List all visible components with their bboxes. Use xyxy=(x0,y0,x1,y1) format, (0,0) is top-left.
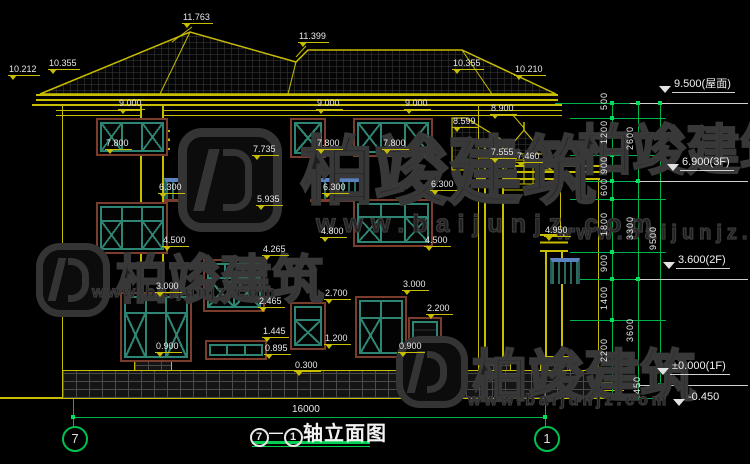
elevation-label: 7.800 xyxy=(316,138,343,150)
elevation-label: 2.700 xyxy=(324,288,351,300)
elevation-marker: 3.600(2F) xyxy=(676,254,730,269)
dimension-value: 450 xyxy=(632,376,642,394)
dimension-value: 900 xyxy=(599,254,609,272)
elevation-label: 0.895 xyxy=(264,343,291,355)
elevation-label: 7.460 xyxy=(516,151,543,163)
elevation-label: 10.212 xyxy=(8,64,40,76)
dimension-value: 900 xyxy=(599,156,609,174)
elevation-label: 4.950 xyxy=(544,225,571,237)
dimension-value: 500 xyxy=(599,92,609,110)
elevation-label: 2.200 xyxy=(426,303,453,315)
elevation-label: 4.265 xyxy=(262,244,289,256)
dimension-value: 600 xyxy=(599,178,609,196)
elevation-label: 7.800 xyxy=(382,138,409,150)
elevation-label: 0.900 xyxy=(155,341,182,353)
elevation-marker: -0.450 xyxy=(686,391,723,405)
elevation-label: 10.355 xyxy=(452,58,484,70)
elevation-label: 4.500 xyxy=(162,235,189,247)
eave-line xyxy=(32,104,562,106)
elevation-label: 10.210 xyxy=(514,64,546,76)
dimension-value: 2600 xyxy=(625,126,635,150)
porch-railing xyxy=(550,258,580,284)
title-axis-start: 7 xyxy=(250,428,269,447)
watermark-url: www.baijunjz.com xyxy=(468,392,670,410)
axis-bubble-1: 1 xyxy=(534,426,560,452)
dimension-value: 3600 xyxy=(625,318,635,342)
elevation-label: 7.735 xyxy=(252,144,279,156)
elevation-label: 9.000 xyxy=(316,98,343,110)
dimension-value: 1800 xyxy=(599,212,609,236)
elevation-label: 6.300 xyxy=(158,182,185,194)
elevation-marker: ±0.000(1F) xyxy=(670,360,730,375)
elevation-label: 1.200 xyxy=(324,333,351,345)
elevation-label: 9.000 xyxy=(404,98,431,110)
watermark-brand: 柏竣建筑 xyxy=(300,112,596,219)
eave-line xyxy=(36,94,558,96)
elevation-label: 1.445 xyxy=(262,326,289,338)
axis-bubble-7: 7 xyxy=(62,426,88,452)
elevation-label: 4.800 xyxy=(320,226,347,238)
elevation-label: 7.555 xyxy=(490,147,517,159)
title-dash: — xyxy=(269,424,284,440)
watermark-url: www.baijunjz.com xyxy=(92,284,278,302)
elevation-label: 9.000 xyxy=(118,98,145,110)
elevation-label: 8.599 xyxy=(452,116,479,128)
elevation-label: 0.900 xyxy=(398,341,425,353)
marker-line xyxy=(630,103,748,104)
dimension-value-overall: 9500 xyxy=(648,226,658,250)
elevation-label: 7.800 xyxy=(105,138,132,150)
extension-line xyxy=(570,252,666,253)
window xyxy=(205,340,267,360)
elevation-label: 10.355 xyxy=(48,58,80,70)
eave-line xyxy=(36,99,558,101)
elevation-label: 0.300 xyxy=(294,360,321,372)
dimension-value: 1200 xyxy=(599,120,609,144)
title-text: 轴立面图 xyxy=(303,423,387,445)
extension-line xyxy=(570,320,666,321)
dimension-value: 2200 xyxy=(599,338,609,362)
title-axis-end: 1 xyxy=(284,428,303,447)
cad-elevation-drawing: 柏竣建筑 www.baijunjz.com 柏竣建筑 www.baijunjz.… xyxy=(0,0,750,464)
axis-line xyxy=(73,399,74,427)
watermark-logo xyxy=(36,243,110,317)
marker-line xyxy=(635,279,748,280)
dimension-value: 3300 xyxy=(625,216,635,240)
elevation-label: 8.900 xyxy=(490,103,517,115)
overall-dimension-value: 16000 xyxy=(292,404,320,415)
elevation-label: 2.465 xyxy=(258,296,285,308)
elevation-label: 4.500 xyxy=(424,235,451,247)
elevation-label: 11.763 xyxy=(182,12,213,24)
elevation-label: 5.935 xyxy=(256,194,283,206)
frieze-line xyxy=(56,110,562,111)
elevation-label: 6.300 xyxy=(322,182,349,194)
elevation-label: 3.000 xyxy=(155,281,182,293)
elevation-label: 6.300 xyxy=(430,179,457,191)
dimension-value: 1400 xyxy=(599,286,609,310)
drawing-title: 7—1轴立面图 xyxy=(250,417,387,447)
elevation-label: 3.000 xyxy=(402,279,429,291)
elevation-marker: 9.500(屋面) xyxy=(672,78,735,93)
elevation-label: 11.399 xyxy=(298,31,329,43)
elevation-marker: 6.900(3F) xyxy=(680,156,734,171)
